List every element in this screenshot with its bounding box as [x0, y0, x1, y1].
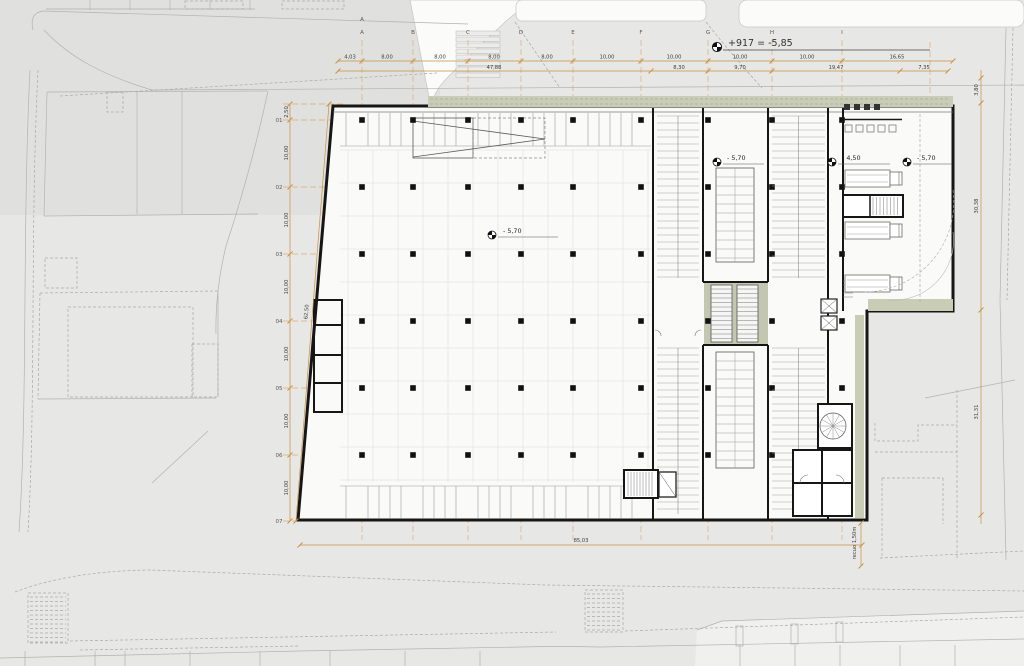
stair [624, 470, 658, 498]
column [705, 117, 711, 123]
column [638, 117, 644, 123]
dim-label: 10,00 [600, 55, 615, 61]
column [769, 184, 775, 190]
grid-number: 06 [275, 453, 283, 459]
column [518, 117, 524, 123]
city-block [516, 0, 706, 21]
level-text: - 5,70 [503, 227, 522, 235]
column [465, 184, 471, 190]
column [465, 452, 471, 458]
dim-label: 8,00 [434, 55, 446, 61]
locker [844, 104, 850, 110]
building-outline [298, 106, 953, 520]
column [465, 318, 471, 324]
column [518, 251, 524, 257]
column [570, 452, 576, 458]
crosswalk-stripe [456, 43, 500, 47]
truck-body [845, 275, 890, 292]
truck-cab [890, 172, 902, 185]
grid-letter: D [519, 30, 523, 36]
dim-label: 8,00 [381, 55, 393, 61]
column [769, 117, 775, 123]
column [518, 452, 524, 458]
column [705, 385, 711, 391]
grid-number: 07 [275, 519, 283, 525]
grid-number: 01 [275, 118, 283, 124]
locker [874, 104, 880, 110]
dim-label: 30,38 [974, 199, 980, 214]
grid-number: 03 [275, 252, 283, 258]
dim-label: 10,00 [733, 55, 748, 61]
truck-body [845, 222, 890, 239]
column [465, 117, 471, 123]
dim-label: 10,00 [284, 280, 290, 295]
column [705, 184, 711, 190]
crosswalk-stripe [456, 37, 500, 41]
grid-number: 02 [275, 185, 282, 191]
column [359, 117, 365, 123]
column [518, 184, 524, 190]
dim-label: 10,00 [284, 414, 290, 429]
level-marker-icon [828, 158, 836, 166]
column [410, 318, 416, 324]
grid-number: 05 [275, 386, 283, 392]
truck-cab [890, 277, 902, 290]
truck-body [845, 170, 890, 187]
crosswalk-stripe [456, 31, 500, 35]
column [410, 452, 416, 458]
column [638, 184, 644, 190]
dim-label: 10,00 [284, 347, 290, 362]
dim-label: 10,00 [284, 213, 290, 228]
column [839, 385, 845, 391]
column [570, 117, 576, 123]
column [465, 251, 471, 257]
column [705, 452, 711, 458]
column [359, 184, 365, 190]
column [839, 318, 845, 324]
dim-label: 16,65 [890, 55, 905, 61]
dim-label: 3,80 [974, 84, 980, 96]
column [705, 318, 711, 324]
column [410, 184, 416, 190]
level-marker-icon [488, 231, 496, 239]
column [705, 251, 711, 257]
datum-text: +917 = -5,85 [728, 38, 793, 49]
column [410, 385, 416, 391]
column [570, 318, 576, 324]
level-marker-icon [713, 158, 721, 166]
grid-letter: B [411, 30, 415, 36]
dim-label: 31,31 [974, 405, 980, 420]
floor-plan-canvas: 4,03 8,00 8,00 8,00 8,00 10,00 10,00 10,… [0, 0, 1024, 666]
column [410, 117, 416, 123]
city-block [739, 0, 1024, 27]
green-strip-side [855, 315, 864, 518]
column [359, 452, 365, 458]
dim-label: 10,00 [284, 146, 290, 161]
column [638, 385, 644, 391]
column [410, 251, 416, 257]
column [518, 385, 524, 391]
column [465, 385, 471, 391]
dim-label: 10,00 [284, 481, 290, 496]
grid-letter: A [360, 17, 364, 23]
dim-label: 19,47 [829, 65, 844, 71]
column [359, 318, 365, 324]
grid-number: 04 [275, 319, 283, 325]
dim-label: 9,70 [734, 65, 746, 71]
column [359, 385, 365, 391]
column [359, 251, 365, 257]
grid-letter: E [571, 30, 575, 36]
level-text: - 5,70 [727, 154, 746, 162]
column [570, 251, 576, 257]
dim-total-label: 85,03 [574, 538, 589, 544]
level-text: - 5,70 [917, 154, 936, 162]
grid-letter: A [360, 30, 364, 36]
crosswalk-stripe [456, 73, 500, 77]
level-text: - 4,50 [842, 154, 861, 162]
grid-letter: H [770, 30, 774, 36]
column [769, 318, 775, 324]
locker [854, 104, 860, 110]
dim-label: 10,00 [667, 55, 682, 61]
dim-label: 8,00 [488, 55, 500, 61]
dim-label: 2,50 [284, 106, 290, 118]
truck-cab [890, 224, 902, 237]
dim-label: 7,35 [918, 65, 930, 71]
dim-label: 4,03 [344, 55, 356, 61]
floor-plan-svg: 4,03 8,00 8,00 8,00 8,00 10,00 10,00 10,… [0, 0, 1024, 666]
column [638, 318, 644, 324]
locker [864, 104, 870, 110]
level-marker-icon [903, 158, 911, 166]
setback-label: recuo 1,50m [852, 527, 858, 560]
crosswalk-stripe [456, 49, 500, 53]
grid-letter: C [466, 30, 470, 36]
grid-letter: F [639, 30, 642, 36]
column [518, 318, 524, 324]
column [570, 385, 576, 391]
grid-letter: G [706, 30, 710, 36]
dim-label: 47,88 [487, 65, 502, 71]
column [570, 184, 576, 190]
dim-label: 8,00 [541, 55, 553, 61]
dim-label: 8,30 [673, 65, 685, 71]
column [638, 452, 644, 458]
benchmark-icon [712, 42, 721, 51]
green-strip-right [868, 299, 953, 311]
column [638, 251, 644, 257]
dim-label: 10,00 [800, 55, 815, 61]
